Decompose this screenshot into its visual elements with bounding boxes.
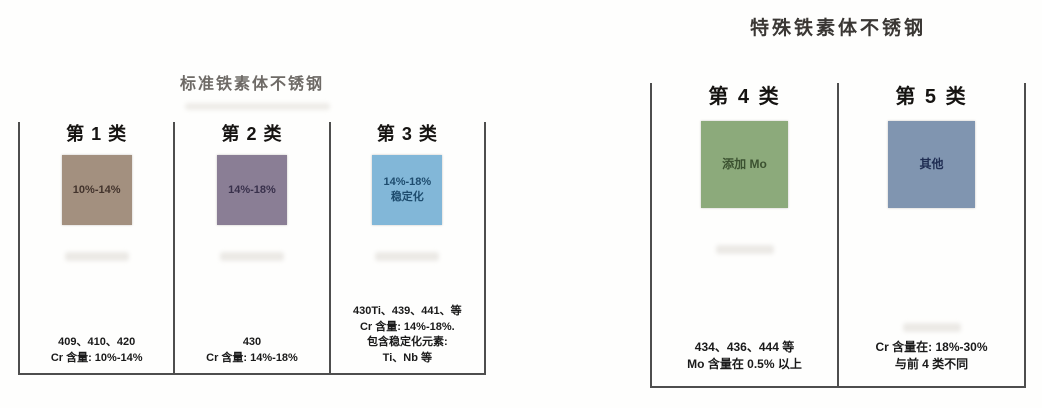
note-line: 包含稳定化元素:	[353, 335, 462, 351]
note-line: Ti、Nb 等	[353, 351, 462, 367]
class-1-swatch: 10%-14%	[62, 155, 132, 225]
special-group-title: 特殊铁素体不锈钢	[650, 13, 1026, 40]
standard-group-title: 标准铁素体不锈钢	[18, 70, 486, 94]
class-4-swatch-label: 添加 Mo	[722, 156, 767, 173]
class-5-notes: Cr 含量在: 18%-30% 与前 4 类不同	[875, 339, 987, 373]
class-2-header: 第 2 类	[221, 123, 282, 145]
class-3-column: 第 3 类 14%-18% 稳定化 430Ti、439、441、等 Cr 含量:…	[329, 122, 486, 373]
class-4-swatch: 添加 Mo	[701, 121, 788, 208]
standard-group-table: 第 1 类 10%-14% 409、410、420 Cr 含量: 10%-14%…	[18, 122, 486, 375]
class-2-notes: 430 Cr 含量: 14%-18%	[206, 335, 298, 366]
class-3-header: 第 3 类	[377, 123, 438, 145]
class-2-column: 第 2 类 14%-18% 430 Cr 含量: 14%-18%	[173, 122, 328, 373]
class-3-swatch-label-line2: 稳定化	[391, 190, 424, 205]
faded-text-artifact	[903, 323, 961, 332]
class-3-swatch-label-line1: 14%-18%	[383, 175, 431, 190]
class-1-column: 第 1 类 10%-14% 409、410、420 Cr 含量: 10%-14%	[18, 122, 173, 373]
class-4-header: 第 4 类	[708, 85, 780, 109]
note-line: Mo 含量在 0.5% 以上	[687, 356, 802, 373]
class-1-notes: 409、410、420 Cr 含量: 10%-14%	[51, 335, 143, 366]
class-5-header: 第 5 类	[895, 85, 967, 109]
class-2-swatch-label: 14%-18%	[228, 183, 276, 198]
class-3-notes: 430Ti、439、441、等 Cr 含量: 14%-18%. 包含稳定化元素:…	[353, 304, 462, 366]
class-5-column: 第 5 类 其他 Cr 含量在: 18%-30% 与前 4 类不同	[837, 83, 1026, 386]
class-5-swatch-label: 其他	[919, 156, 943, 173]
note-line: 430Ti、439、441、等	[353, 304, 462, 320]
class-1-header: 第 1 类	[66, 123, 127, 145]
note-line: Cr 含量在: 18%-30%	[875, 339, 987, 356]
class-4-notes: 434、436、444 等 Mo 含量在 0.5% 以上	[687, 339, 802, 373]
note-line: 430	[206, 335, 298, 351]
note-line: 与前 4 类不同	[875, 356, 987, 373]
class-1-swatch-label: 10%-14%	[73, 183, 121, 198]
note-line: 434、436、444 等	[687, 339, 802, 356]
faded-text-artifact	[220, 252, 284, 261]
faded-text-artifact	[65, 252, 129, 261]
note-line: Cr 含量: 10%-14%	[51, 351, 143, 367]
class-5-swatch: 其他	[888, 121, 975, 208]
note-line: Cr 含量: 14%-18%	[206, 351, 298, 367]
note-line: 409、410、420	[51, 335, 143, 351]
faded-text-artifact	[716, 245, 774, 254]
ferritic-stainless-classification-diagram: 标准铁素体不锈钢 第 1 类 10%-14% 409、410、420 Cr 含量…	[0, 0, 1042, 408]
class-2-swatch: 14%-18%	[217, 155, 287, 225]
class-3-swatch: 14%-18% 稳定化	[372, 155, 442, 225]
faded-text-artifact	[185, 103, 330, 110]
note-line: Cr 含量: 14%-18%.	[353, 320, 462, 336]
special-group-table: 第 4 类 添加 Mo 434、436、444 等 Mo 含量在 0.5% 以上…	[650, 83, 1026, 388]
class-4-column: 第 4 类 添加 Mo 434、436、444 等 Mo 含量在 0.5% 以上	[650, 83, 837, 386]
faded-text-artifact	[375, 252, 439, 261]
